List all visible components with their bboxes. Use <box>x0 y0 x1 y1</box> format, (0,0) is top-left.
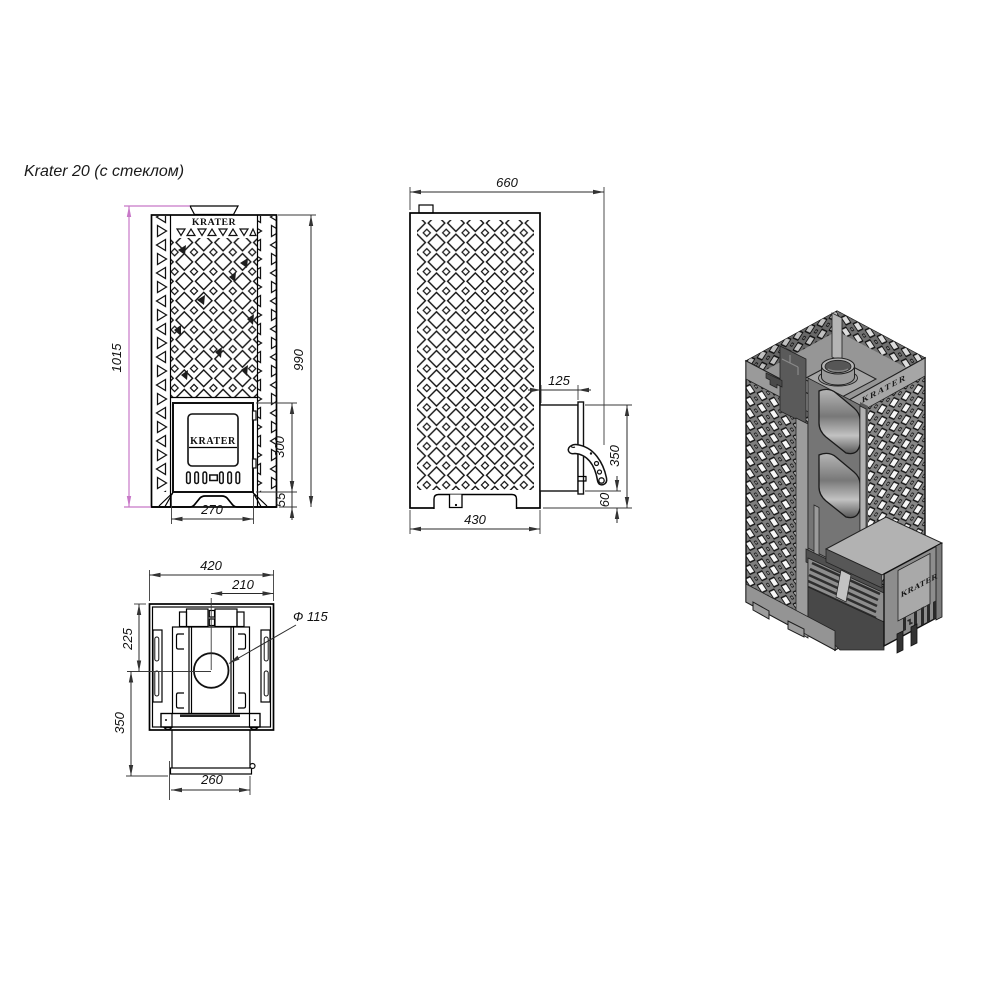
svg-text:990: 990 <box>291 348 306 370</box>
svg-text:1015: 1015 <box>109 343 124 373</box>
svg-text:430: 430 <box>464 512 486 527</box>
svg-text:125: 125 <box>548 373 570 388</box>
svg-text:420: 420 <box>200 558 222 573</box>
svg-text:210: 210 <box>231 577 254 592</box>
svg-text:Ф 115: Ф 115 <box>293 609 328 624</box>
svg-text:KRATER: KRATER <box>192 217 237 228</box>
svg-text:KRATER: KRATER <box>190 436 236 447</box>
svg-text:270: 270 <box>200 502 223 517</box>
svg-text:60: 60 <box>597 492 612 507</box>
svg-text:300: 300 <box>272 435 287 457</box>
svg-text:350: 350 <box>112 711 127 733</box>
svg-text:660: 660 <box>496 175 518 190</box>
svg-text:225: 225 <box>120 627 135 650</box>
svg-text:Krater 20 (с стеклом): Krater 20 (с стеклом) <box>24 163 184 180</box>
svg-text:260: 260 <box>200 772 223 787</box>
svg-text:350: 350 <box>607 444 622 466</box>
svg-text:55: 55 <box>273 492 288 507</box>
